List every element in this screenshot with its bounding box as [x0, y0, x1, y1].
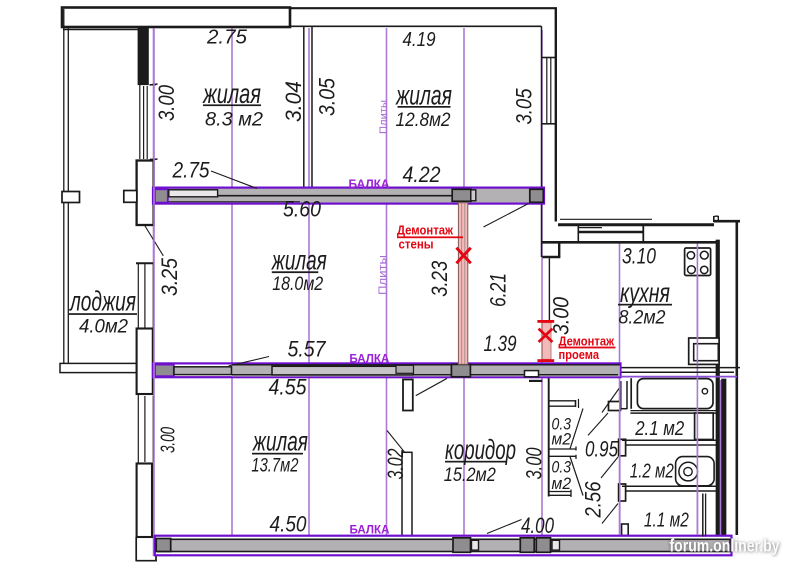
svg-text:4.19: 4.19: [403, 29, 436, 51]
svg-text:1.2 м2: 1.2 м2: [630, 461, 674, 483]
svg-text:1.39: 1.39: [484, 331, 517, 356]
svg-text:3.00: 3.00: [154, 85, 179, 121]
svg-text:5.57: 5.57: [288, 337, 327, 362]
svg-text:стены: стены: [399, 237, 434, 252]
svg-text:3.05: 3.05: [315, 78, 340, 116]
svg-text:3.04: 3.04: [281, 81, 306, 122]
svg-text:3.02: 3.02: [383, 448, 408, 479]
svg-text:Плиты: Плиты: [378, 100, 390, 134]
svg-text:проема: проема: [559, 347, 600, 362]
svg-text:8.2м2: 8.2м2: [619, 308, 666, 329]
svg-text:4.0м2: 4.0м2: [79, 317, 128, 338]
svg-text:15.2м2: 15.2м2: [444, 465, 496, 486]
svg-text:5.60: 5.60: [283, 197, 321, 222]
svg-text:лоджия: лоджия: [68, 287, 136, 317]
svg-text:м2: м2: [552, 474, 572, 493]
svg-text:3.00: 3.00: [158, 427, 180, 453]
svg-text:БАЛКА: БАЛКА: [350, 525, 390, 537]
svg-text:18.0м2: 18.0м2: [272, 274, 323, 295]
svg-text:4.50: 4.50: [270, 512, 307, 537]
svg-text:3.00: 3.00: [522, 447, 547, 479]
svg-text:БАЛКА: БАЛКА: [349, 354, 389, 366]
svg-text:3.10: 3.10: [622, 244, 656, 269]
svg-text:4.00: 4.00: [521, 513, 554, 538]
svg-text:Плиты: Плиты: [377, 255, 389, 295]
svg-text:3.23: 3.23: [427, 260, 452, 296]
svg-text:2.75: 2.75: [206, 27, 248, 49]
svg-text:м2: м2: [552, 430, 572, 449]
svg-text:12.8м2: 12.8м2: [396, 110, 451, 131]
svg-text:Демонтаж: Демонтаж: [397, 223, 454, 238]
svg-text:жилая: жилая: [252, 427, 308, 457]
svg-text:БАЛКА: БАЛКА: [349, 179, 390, 191]
svg-text:13.7м2: 13.7м2: [251, 456, 298, 477]
svg-text:4.55: 4.55: [269, 374, 307, 399]
svg-text:3.00: 3.00: [549, 297, 574, 335]
svg-text:3.05: 3.05: [512, 88, 537, 124]
svg-text:0.95: 0.95: [585, 437, 618, 462]
svg-text:forum.onliner.by: forum.onliner.by: [670, 535, 780, 555]
svg-text:8.3 м2: 8.3 м2: [205, 110, 263, 131]
svg-text:1.1 м2: 1.1 м2: [644, 510, 689, 532]
svg-text:6.21: 6.21: [485, 273, 510, 307]
svg-text:2.1 м2: 2.1 м2: [634, 418, 684, 440]
svg-text:3.25: 3.25: [157, 258, 182, 296]
svg-text:2.56: 2.56: [581, 481, 606, 518]
svg-text:2.75: 2.75: [172, 158, 210, 183]
svg-text:4.22: 4.22: [403, 162, 441, 187]
